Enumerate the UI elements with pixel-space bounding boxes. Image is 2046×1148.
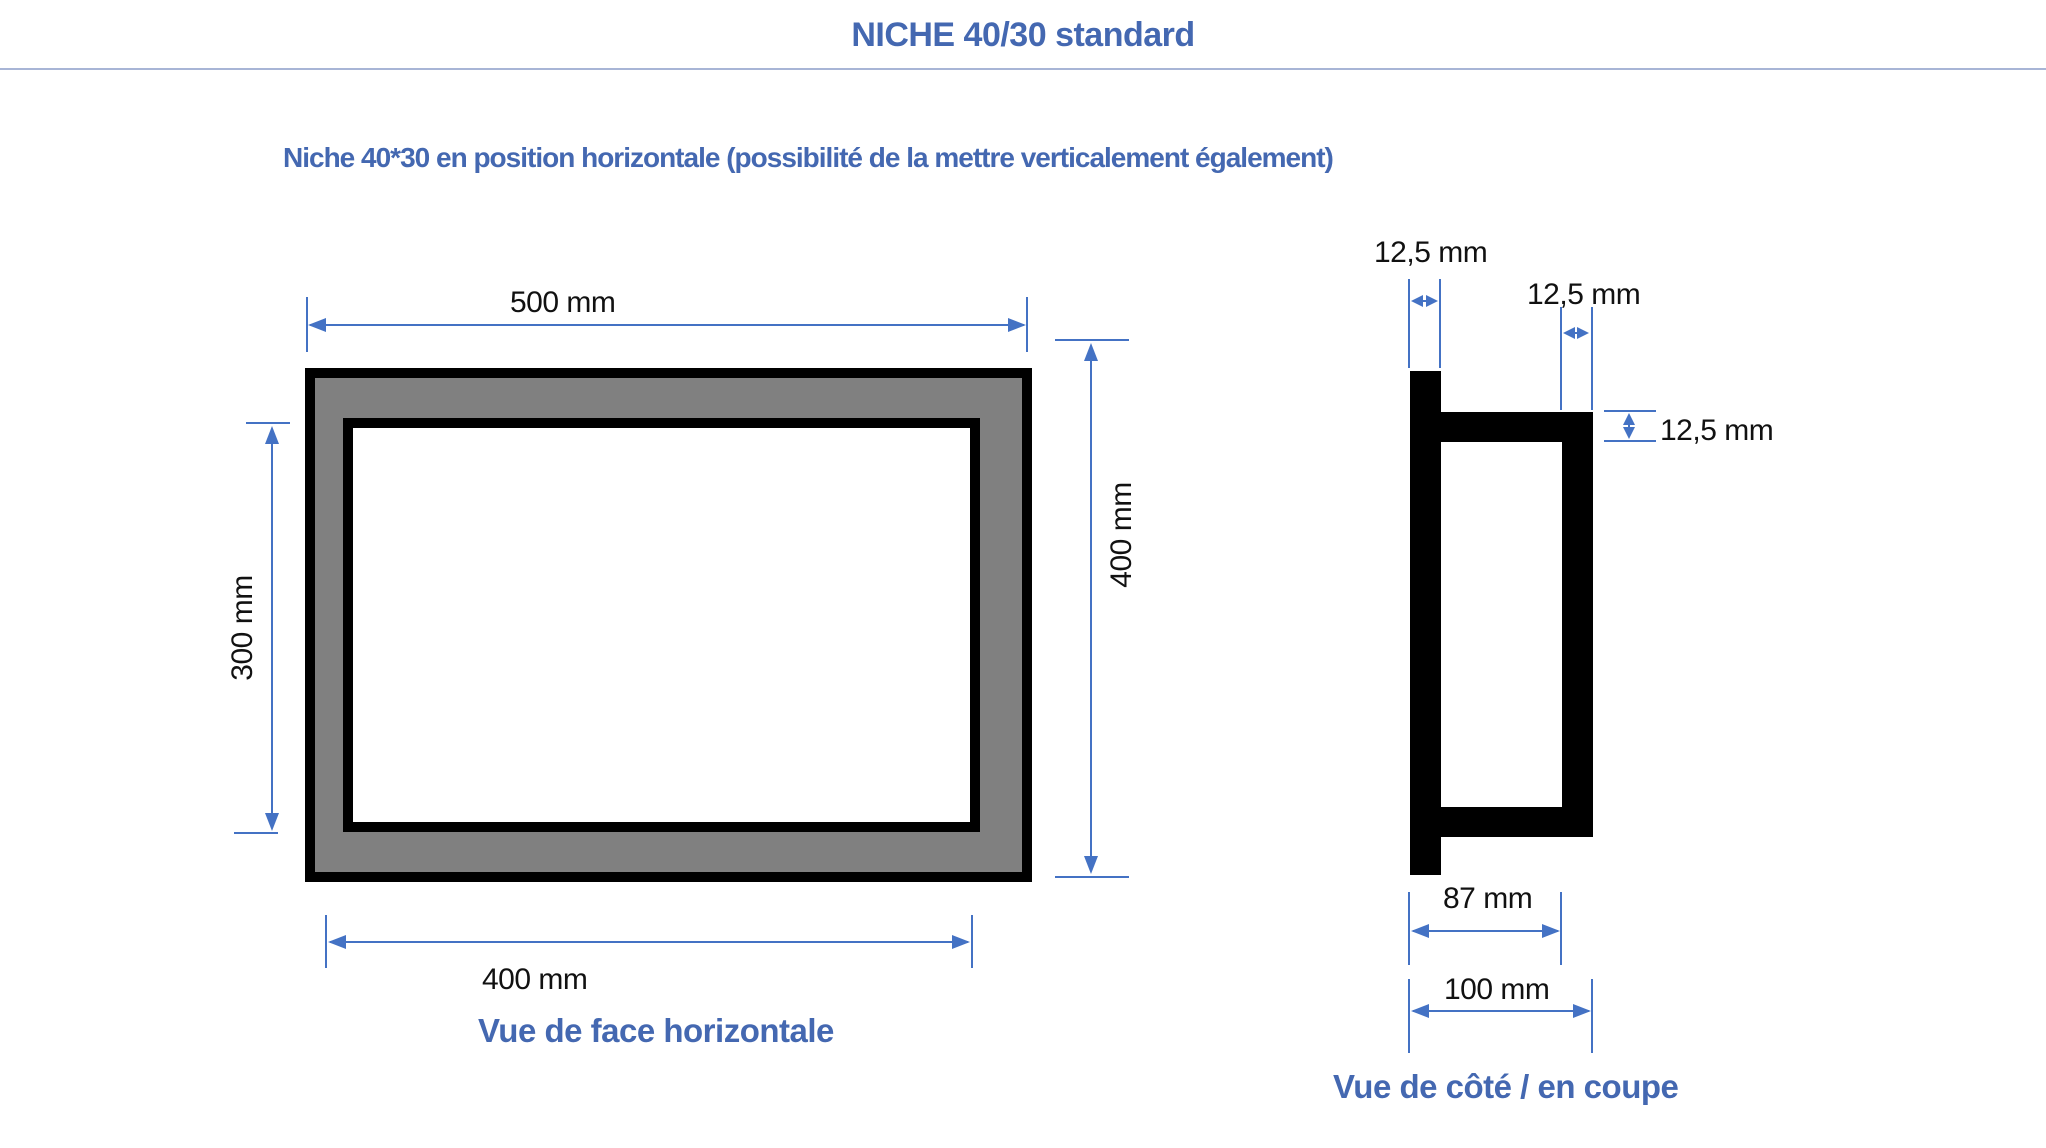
dim-400mm-right-tick-top [1055,339,1129,341]
dim-12-5-rear-arrow-left [1563,327,1575,339]
drawing-canvas: NICHE 40/30 standard Niche 40*30 en posi… [0,0,2046,1148]
dim-87mm-label: 87 mm [1443,882,1532,916]
dim-100mm-arrow-left [1411,1004,1429,1018]
dim-400mm-right-arrow-up [1084,343,1098,361]
side-bottom-flange [1441,807,1593,837]
dim-87mm-line [1413,930,1558,932]
dim-100mm-line [1413,1010,1589,1012]
header-divider [0,68,2046,70]
dim-400mm-right-line [1090,346,1092,871]
dim-400mm-bottom-ext-left [325,915,327,968]
dim-12-5-front-ext-left [1408,279,1410,368]
front-view-caption: Vue de face horizontale [478,1012,834,1050]
dim-12-5-rear-arrow-right [1577,327,1589,339]
dim-12-5-front-label: 12,5 mm [1374,236,1487,270]
side-front-plate [1410,371,1441,875]
dim-400mm-right-arrow-down [1084,856,1098,874]
dim-300mm-arrow-up [265,426,279,444]
dim-400mm-bottom-line [330,941,968,943]
dim-12-5-front-arrow-left [1411,295,1423,307]
dim-12-5-front-ext-right [1439,279,1441,368]
dim-87mm-ext-right [1560,892,1562,965]
dim-100mm-ext-right [1591,979,1593,1053]
dim-400mm-bottom-label: 400 mm [482,963,587,997]
dim-300mm-arrow-down [265,813,279,831]
page-subtitle: Niche 40*30 en position horizontale (pos… [283,142,1333,174]
dim-500mm-arrow-right [1008,318,1026,332]
dim-87mm-arrow-right [1542,924,1560,938]
dim-87mm-arrow-left [1411,924,1429,938]
page-title: NICHE 40/30 standard [0,16,2046,55]
dim-500mm-arrow-left [308,318,326,332]
side-rear-plate [1562,412,1593,837]
dim-500mm-label: 500 mm [510,286,615,320]
dim-12-5-flange-ext-bottom [1604,440,1656,442]
dim-300mm-tick-bottom [234,832,278,834]
dim-12-5-flange-label: 12,5 mm [1660,414,1773,448]
dim-100mm-ext-left [1408,979,1410,1053]
dim-87mm-ext-left [1408,892,1410,965]
dim-300mm-line [271,429,273,828]
dim-500mm-line [310,324,1024,326]
dim-400mm-right-tick-bottom [1055,876,1129,878]
dim-400mm-bottom-arrow-left [328,935,346,949]
dim-12-5-flange-ext-top [1604,410,1656,412]
side-view-caption: Vue de côté / en coupe [1333,1068,1678,1106]
dim-100mm-label: 100 mm [1444,973,1549,1007]
dim-100mm-arrow-right [1573,1004,1591,1018]
dim-12-5-front-arrow-right [1426,295,1438,307]
dim-400mm-bottom-ext-right [971,915,973,968]
dim-400mm-bottom-arrow-right [952,935,970,949]
dim-12-5-rear-label: 12,5 mm [1527,278,1640,312]
dim-12-5-flange-arrow-down [1623,427,1635,439]
dim-400mm-right-label: 400 mm [1105,475,1139,595]
niche-opening [343,418,980,832]
dim-300mm-label: 300 mm [226,568,260,688]
dim-300mm-tick-top [246,422,290,424]
dim-500mm-ext-right [1026,297,1028,352]
dim-12-5-rear-ext-right [1591,307,1593,410]
dim-12-5-rear-ext-left [1560,307,1562,410]
dim-12-5-flange-arrow-up [1623,413,1635,425]
